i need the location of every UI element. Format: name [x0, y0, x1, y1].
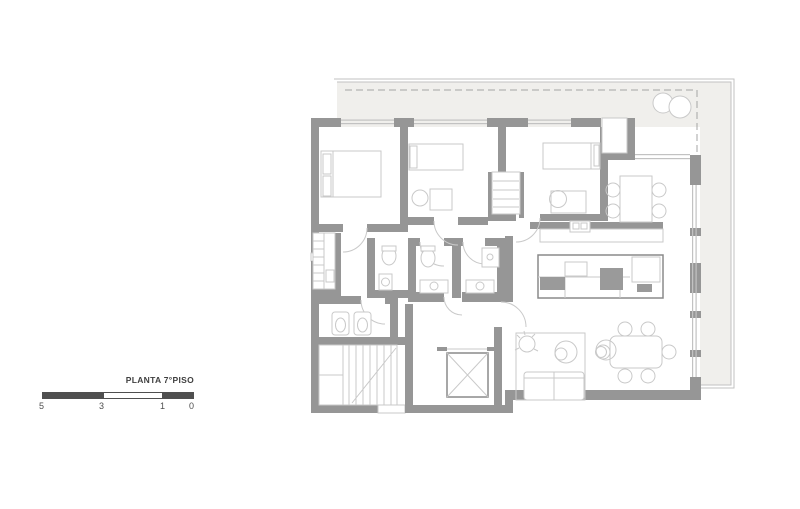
bathroom-1 — [420, 246, 448, 293]
built-in-closet — [602, 118, 627, 153]
chair — [618, 322, 632, 336]
scale-ticks: 5 3 1 0 — [42, 401, 194, 413]
vanity-desk — [551, 191, 586, 213]
sink — [565, 262, 587, 276]
table — [620, 176, 652, 222]
chair — [412, 190, 428, 206]
armchair-cushion — [555, 348, 567, 360]
shower — [482, 248, 499, 267]
window — [635, 154, 690, 155]
scale-segment-light — [103, 392, 163, 399]
chair — [652, 183, 666, 197]
plant — [515, 331, 538, 352]
refrigerator — [632, 257, 660, 282]
sink — [379, 274, 392, 290]
toilet — [421, 249, 435, 267]
toilet-room — [379, 246, 396, 290]
bedroom-2 — [409, 144, 463, 210]
stool — [550, 191, 567, 208]
terrace-planter — [669, 96, 691, 118]
service-opening — [378, 405, 405, 413]
kitchen-island — [538, 255, 663, 298]
bathroom-3 — [332, 312, 371, 335]
chair — [662, 345, 676, 359]
table — [610, 336, 662, 368]
chair — [618, 369, 632, 383]
scale-tick: 5 — [39, 401, 44, 411]
kitchen-counter — [540, 229, 663, 242]
legend: PLANTA 7°PISO 5 3 1 0 — [42, 374, 194, 413]
sofa — [524, 372, 584, 400]
scale-segment-dark — [163, 392, 194, 399]
door-bedroom-1 — [343, 228, 367, 252]
island-cabinet — [540, 277, 565, 290]
bedroom-3-master — [543, 118, 627, 213]
scale-tick: 1 — [160, 401, 165, 411]
window — [635, 158, 690, 159]
dining-table-4 — [606, 176, 666, 222]
chair — [606, 183, 620, 197]
pillow — [410, 146, 417, 168]
chair — [641, 369, 655, 383]
door-lobby — [444, 297, 462, 315]
kitchen — [538, 221, 663, 298]
plan-title: PLANTA 7°PISO — [42, 374, 194, 386]
chair — [606, 204, 620, 218]
scale-segment-dark — [42, 392, 103, 399]
door-entrance — [501, 302, 526, 327]
oven — [637, 284, 652, 292]
living-room — [515, 322, 676, 400]
cooktop — [600, 268, 623, 290]
staircase — [319, 345, 397, 405]
scale-tick: 3 — [99, 401, 104, 411]
scale-tick: 0 — [189, 401, 194, 411]
scale-bar — [42, 392, 194, 399]
toilet-tank — [421, 246, 435, 251]
hall-closet — [492, 172, 520, 214]
toilet-tank — [382, 246, 396, 251]
elevator — [437, 347, 497, 397]
desk — [430, 189, 452, 210]
pillow — [594, 145, 599, 166]
dining-table-6 — [596, 322, 676, 383]
floor-plan — [0, 0, 800, 509]
wardrobe — [313, 233, 335, 289]
door-bedroom-3 — [516, 218, 540, 242]
pillow — [323, 176, 331, 196]
pillow — [323, 154, 331, 174]
chair — [641, 322, 655, 336]
chair — [652, 204, 666, 218]
bathroom-2 — [466, 248, 499, 293]
stair-direction-line — [352, 348, 396, 403]
